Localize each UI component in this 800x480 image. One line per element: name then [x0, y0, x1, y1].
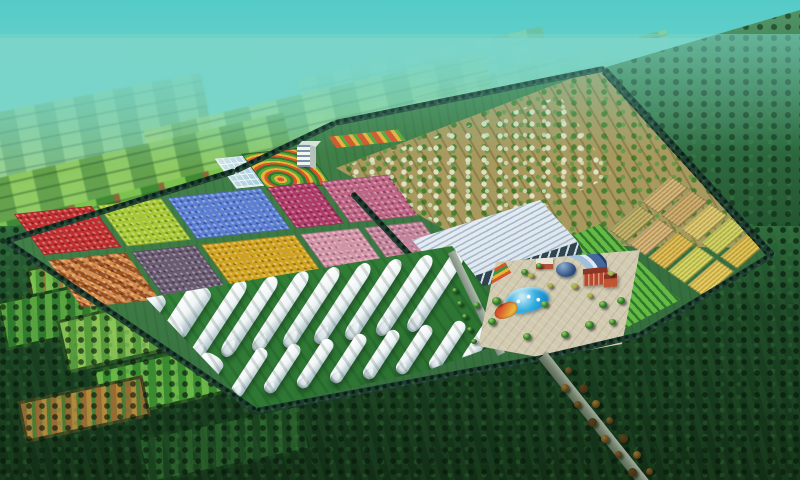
plaza-tree [609, 319, 616, 325]
plaza-tree [547, 283, 553, 288]
atmospheric-haze [0, 34, 800, 154]
plaza-tree [457, 301, 463, 306]
plaza-tree [608, 271, 614, 276]
plaza-tree [488, 318, 496, 325]
plaza-tree [599, 301, 607, 308]
plaza-tree [473, 302, 480, 308]
plaza-tree [571, 283, 578, 289]
plaza-tree [617, 297, 625, 304]
plaza-tree [536, 263, 542, 268]
plaza-tree [521, 269, 528, 275]
plaza-tree [462, 314, 468, 319]
plaza-tree [467, 327, 473, 332]
plaza-tree [541, 301, 548, 307]
plaza-tree [528, 273, 534, 278]
plaza-tree [523, 333, 531, 340]
plaza-tree [452, 288, 458, 293]
plaza-tree [587, 293, 593, 298]
plaza-tree [561, 331, 569, 338]
plaza-tree [585, 321, 594, 329]
aerial-farm-rendering [0, 0, 800, 480]
plaza-tree [492, 297, 501, 305]
plaza-tree [471, 339, 477, 344]
